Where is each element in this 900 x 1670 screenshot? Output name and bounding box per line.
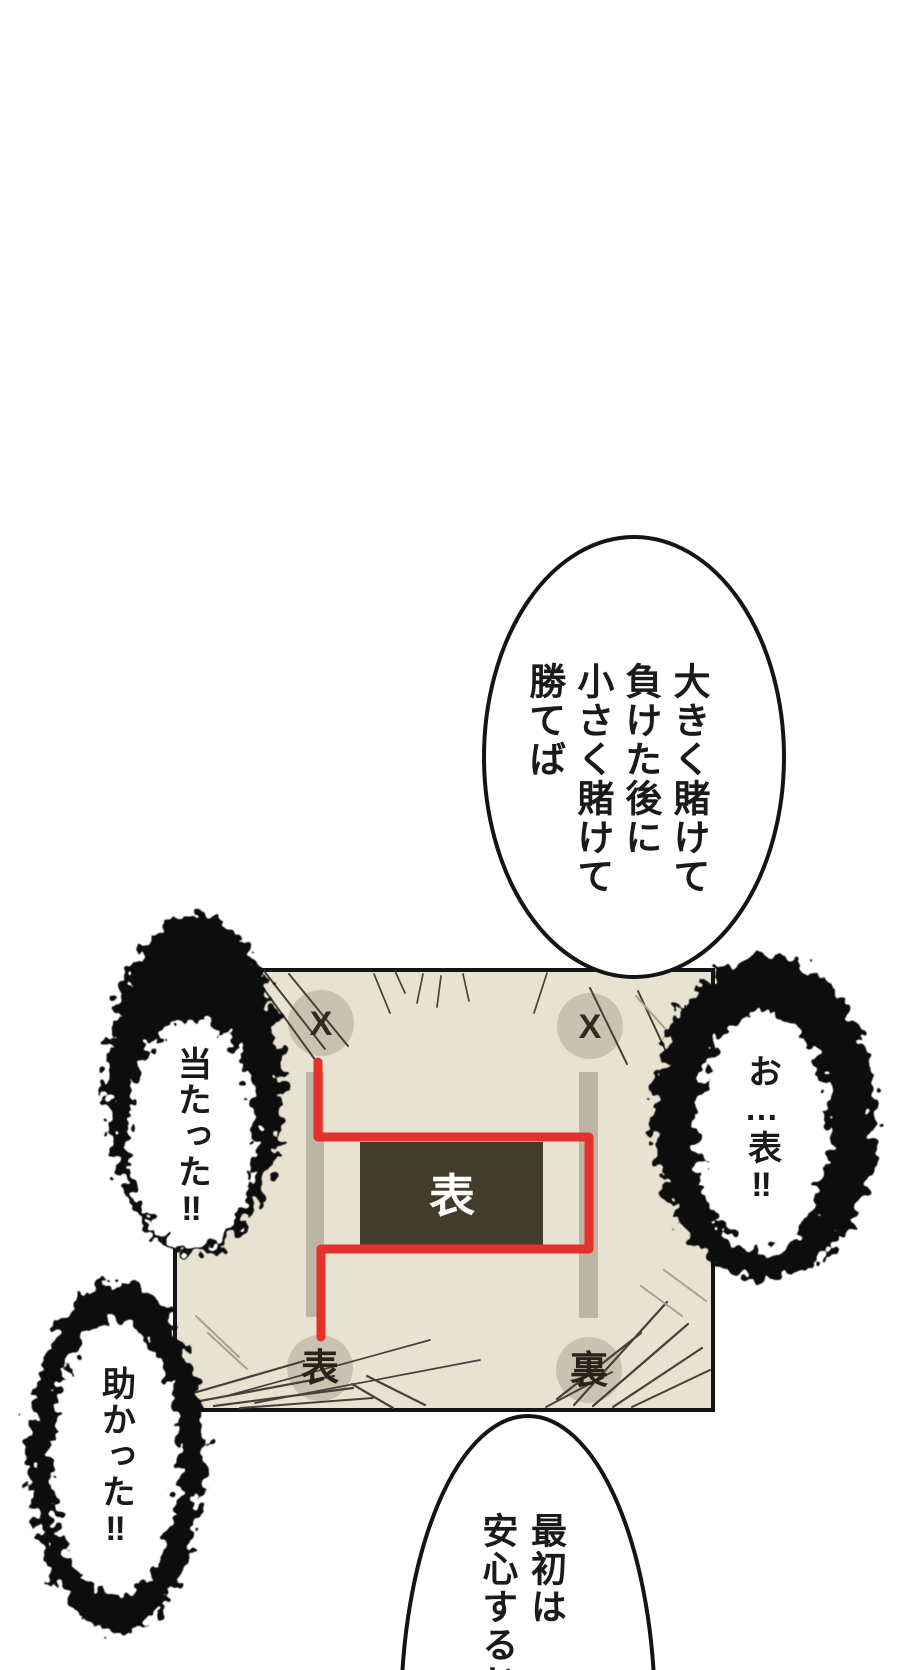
relief-line-1: 最初は xyxy=(521,1512,570,1670)
strategy-line-2: 負けた後に xyxy=(616,662,664,896)
marker-label-top-left: X xyxy=(310,1007,333,1041)
manga-panel: X X 表 裏 表 大きく賭けて 負けた後に 小さく賭けて 勝てば 当たった‼ … xyxy=(0,0,900,1670)
oh-heads-bubble-text: お…表‼ xyxy=(738,1054,787,1206)
card-label: 表 xyxy=(429,1173,475,1219)
relief-line-2: 安心するじ xyxy=(473,1512,522,1670)
relief-bubble-text: 最初は 安心するじ xyxy=(473,1512,570,1670)
marker-label-tails: 裏 xyxy=(570,1352,608,1390)
strategy-line-3: 小さく賭けて xyxy=(568,662,616,896)
strategy-line-4: 勝てば xyxy=(520,662,568,896)
marker-label-heads: 表 xyxy=(301,1350,339,1388)
strategy-bubble-text: 大きく賭けて 負けた後に 小さく賭けて 勝てば xyxy=(520,662,712,896)
saved-bubble-text: 助かった‼ xyxy=(92,1366,141,1550)
marker-label-top-right: X xyxy=(579,1010,602,1044)
hit-bubble-text: 当たった‼ xyxy=(168,1046,217,1230)
strategy-line-1: 大きく賭けて xyxy=(664,662,712,896)
